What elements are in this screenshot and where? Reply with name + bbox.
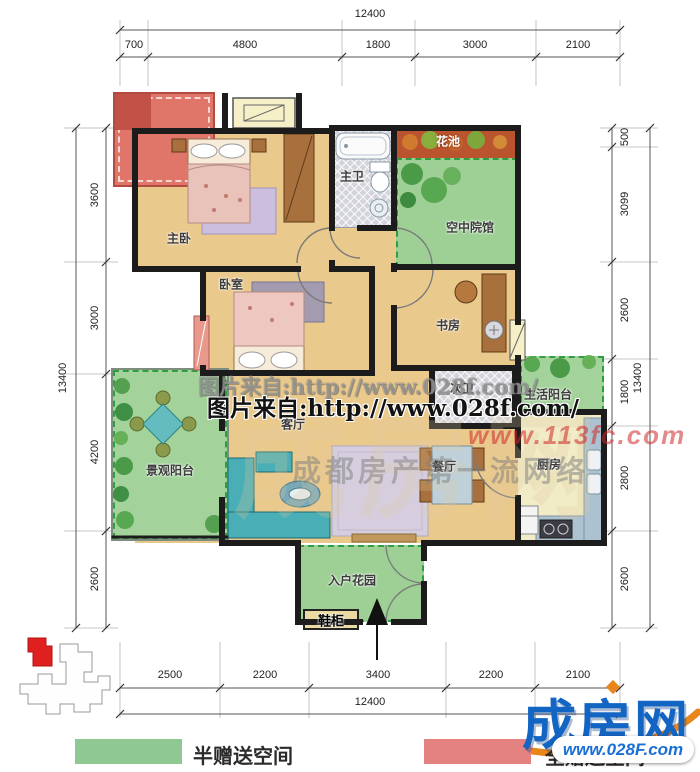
site-logo-url: www.028F.com	[552, 736, 694, 763]
dim-top-seg-1: 4800	[233, 39, 257, 51]
label-flower-bed: 花池	[436, 133, 460, 150]
entrance-arrow-icon	[366, 598, 388, 660]
bathtub-icon	[336, 133, 390, 159]
dim-top-total: 12400	[355, 8, 386, 20]
label-shoe-cabinet: 鞋柜	[318, 611, 344, 630]
legend-swatch-half-gift	[75, 739, 182, 764]
dim-left-seg-2: 4200	[89, 440, 101, 464]
legend-swatch-full-gift	[424, 739, 531, 764]
label-study: 书房	[436, 317, 460, 334]
desk-icon	[455, 274, 506, 352]
dining-table-icon	[420, 446, 484, 504]
dim-left-total: 13400	[57, 363, 69, 394]
toilet-icon	[370, 162, 390, 192]
dim-top-seg-3: 3000	[463, 39, 487, 51]
dim-right-total: 13400	[632, 363, 644, 394]
label-master-bedroom: 主卧	[167, 230, 191, 247]
patio-table-icon	[130, 391, 196, 457]
dim-bottom-seg-1: 2200	[253, 669, 277, 681]
highlighted-unit	[28, 638, 52, 666]
dim-right-seg-5: 2600	[619, 567, 631, 591]
dim-bottom-seg-0: 2500	[158, 669, 182, 681]
legend-label-half-gift: 半赠送空间	[193, 740, 293, 769]
floorplan-page: 12400 700 4800 1800 3000 2100 2500 2200 …	[0, 0, 700, 772]
sink-icon	[370, 199, 388, 217]
living-rug-icon	[332, 446, 428, 536]
label-life-balcony: 生活阳台	[524, 386, 572, 403]
dim-right-seg-2: 2600	[619, 298, 631, 322]
dim-bottom-total: 12400	[355, 696, 386, 708]
dim-left-seg-3: 2600	[89, 567, 101, 591]
dim-bottom-seg-4: 2100	[566, 669, 590, 681]
label-bedroom: 卧室	[219, 276, 243, 293]
dim-right-seg-3: 1800	[619, 380, 631, 404]
dim-bottom-seg-3: 2200	[479, 669, 503, 681]
label-living-room: 客厅	[281, 416, 305, 433]
label-sky-courtyard: 空中院馆	[446, 219, 494, 236]
dim-right-seg-1: 3099	[619, 192, 631, 216]
label-second-bath: 次卫	[450, 380, 474, 397]
label-kitchen: 厨房	[537, 456, 561, 473]
dim-right-seg-0: 500	[619, 128, 631, 146]
kitchen-counter-icon	[518, 418, 604, 542]
dim-left-seg-0: 3600	[89, 183, 101, 207]
dim-top-seg-4: 2100	[566, 39, 590, 51]
dim-left-seg-1: 3000	[89, 306, 101, 330]
label-master-bath: 主卫	[340, 168, 364, 185]
dim-top-seg-2: 1800	[366, 39, 390, 51]
dim-bottom-seg-2: 3400	[366, 669, 390, 681]
master-bed-icon	[172, 139, 276, 234]
wardrobe-icon	[284, 134, 314, 222]
dim-top-seg-0: 700	[125, 39, 143, 51]
unit-locator-keyplan	[12, 632, 117, 732]
label-view-balcony: 景观阳台	[146, 462, 194, 479]
label-entry-garden: 入户花园	[328, 572, 376, 589]
label-dining-room: 餐厅	[432, 458, 456, 475]
dim-right-seg-4: 2800	[619, 466, 631, 490]
